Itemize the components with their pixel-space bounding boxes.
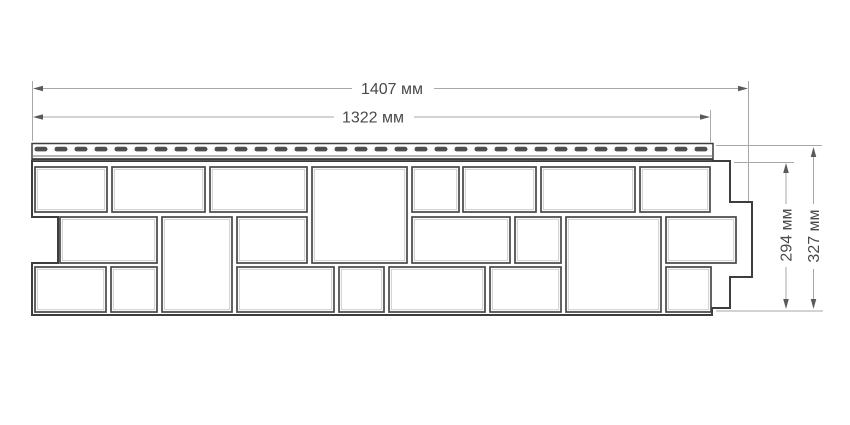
siding-panel-dimension-diagram: 1407 мм1322 мм294 мм327 мм xyxy=(0,0,850,425)
nail-slot xyxy=(515,147,528,152)
dimension-label-panel-height-total: 327 мм xyxy=(806,209,823,262)
nail-slot xyxy=(255,147,268,152)
nail-slot xyxy=(115,147,128,152)
stone-block xyxy=(566,217,661,312)
nail-slot xyxy=(155,147,168,152)
nail-slot xyxy=(435,147,448,152)
nail-slot xyxy=(295,147,308,152)
stone-block xyxy=(210,167,307,212)
stone-block xyxy=(515,217,561,263)
stone-block xyxy=(389,267,485,312)
stone-block xyxy=(112,167,205,212)
nail-slot xyxy=(215,147,228,152)
nail-slot xyxy=(535,147,548,152)
nail-slot xyxy=(135,147,148,152)
nail-slot xyxy=(75,147,88,152)
nail-slot xyxy=(95,147,108,152)
stone-block xyxy=(490,267,561,312)
stone-block xyxy=(237,267,334,312)
nail-slot xyxy=(195,147,208,152)
nail-slot xyxy=(35,147,48,152)
dimension-label-nail-strip-length: 1322 мм xyxy=(342,110,404,127)
nail-slot xyxy=(275,147,288,152)
nail-slot xyxy=(55,147,68,152)
stone-block xyxy=(412,167,459,212)
nail-slot xyxy=(395,147,408,152)
nail-slot xyxy=(615,147,628,152)
nail-slot xyxy=(675,147,688,152)
nail-slot xyxy=(495,147,508,152)
stone-block xyxy=(237,217,307,263)
stone-block xyxy=(412,217,510,263)
nail-slot xyxy=(235,147,248,152)
nail-slot xyxy=(375,147,388,152)
stone-block xyxy=(666,267,711,312)
nail-slot xyxy=(455,147,468,152)
technical-drawing-page: 1407 мм1322 мм294 мм327 мм xyxy=(0,0,850,425)
stone-block xyxy=(541,167,635,212)
dimension-label-panel-length-total: 1407 мм xyxy=(361,81,423,98)
stone-block xyxy=(339,267,384,312)
stone-block xyxy=(60,217,157,263)
stone-block xyxy=(312,167,407,263)
nail-slot xyxy=(335,147,348,152)
stone-block xyxy=(111,267,157,312)
nail-slot xyxy=(555,147,568,152)
nail-slot xyxy=(415,147,428,152)
nail-slot xyxy=(635,147,648,152)
nail-slot xyxy=(575,147,588,152)
stone-block xyxy=(35,167,107,212)
nail-slot xyxy=(475,147,488,152)
nail-slot xyxy=(655,147,668,152)
nail-slot xyxy=(595,147,608,152)
stone-block xyxy=(463,167,536,212)
nail-slot xyxy=(315,147,328,152)
nail-slot xyxy=(175,147,188,152)
stone-block xyxy=(666,217,736,263)
stone-block xyxy=(35,267,106,312)
dimension-label-panel-height: 294 мм xyxy=(779,208,796,261)
nail-slot xyxy=(355,147,368,152)
stone-block xyxy=(162,217,232,312)
stone-block xyxy=(640,167,710,212)
nail-slot xyxy=(695,147,708,152)
